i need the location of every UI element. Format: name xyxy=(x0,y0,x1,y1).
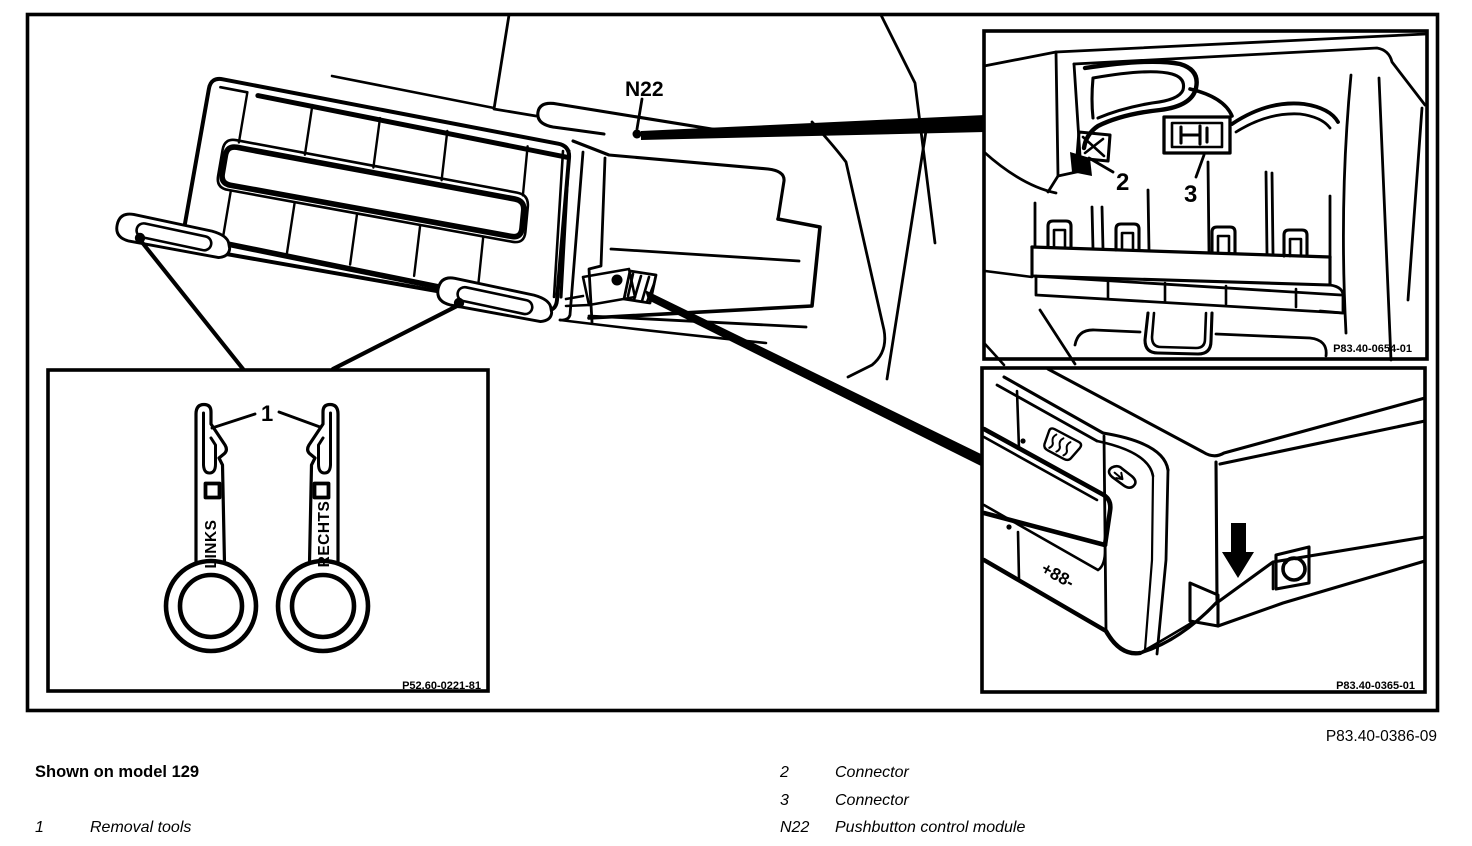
svg-text:3: 3 xyxy=(780,792,789,809)
svg-text:3: 3 xyxy=(1184,181,1197,208)
svg-text:P52.60-0221-81: P52.60-0221-81 xyxy=(402,680,481,692)
svg-text:P83.40-0386-09: P83.40-0386-09 xyxy=(1326,728,1437,745)
svg-text:Pushbutton control module: Pushbutton control module xyxy=(835,819,1025,836)
svg-text:N22: N22 xyxy=(625,78,664,101)
svg-text:Removal tools: Removal tools xyxy=(90,819,191,836)
svg-text:Connector: Connector xyxy=(835,764,909,781)
svg-text:2: 2 xyxy=(779,764,789,781)
svg-text:N22: N22 xyxy=(780,819,809,836)
svg-text:2: 2 xyxy=(1116,169,1129,196)
svg-text:1: 1 xyxy=(261,401,273,426)
svg-text:P83.40-0654-01: P83.40-0654-01 xyxy=(1333,343,1412,355)
svg-text:LINKS: LINKS xyxy=(203,520,220,569)
svg-text:RECHTS: RECHTS xyxy=(316,501,333,568)
svg-text:Connector: Connector xyxy=(835,792,909,809)
svg-text:P83.40-0365-01: P83.40-0365-01 xyxy=(1336,680,1415,692)
svg-text:1: 1 xyxy=(35,819,44,836)
svg-text:Shown on model 129: Shown on model 129 xyxy=(35,763,199,781)
